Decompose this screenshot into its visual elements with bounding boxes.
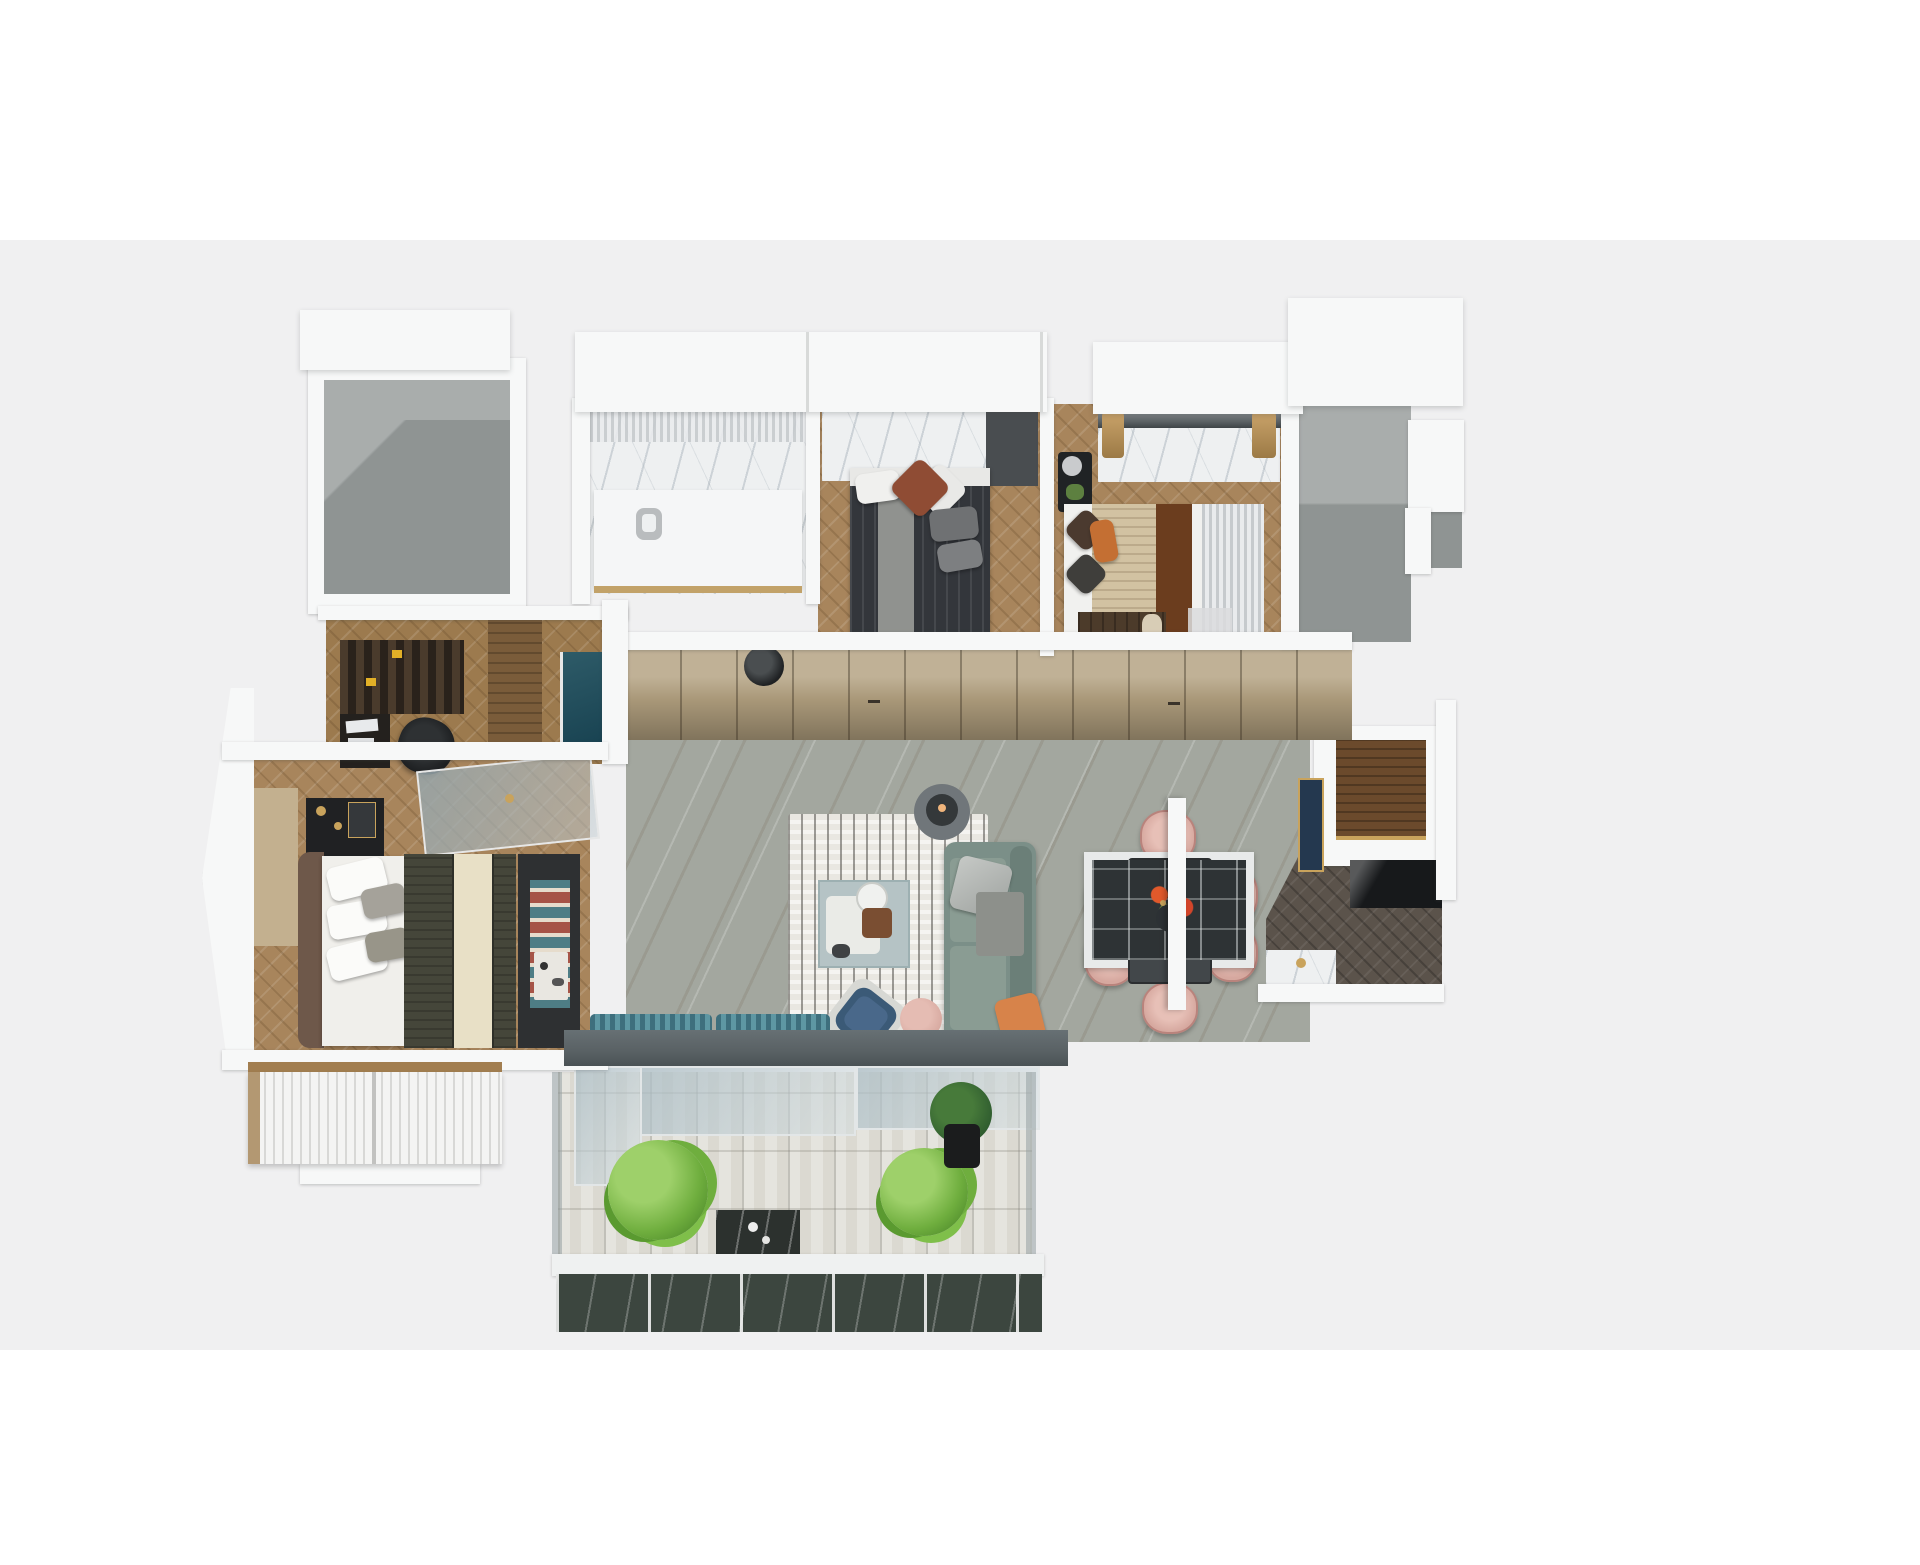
study-north-wall	[318, 606, 628, 620]
study-tall-cabinet	[488, 618, 542, 754]
bath-bed2-wall	[806, 398, 820, 604]
stairwell-step-wall	[1408, 420, 1464, 512]
gold-kettle	[1296, 958, 1306, 968]
kitchen-east-wall	[1436, 700, 1456, 900]
basket	[862, 908, 892, 938]
gold-decor	[505, 794, 514, 803]
sliding-glass-door	[640, 1066, 856, 1136]
stairwell-step-notch	[1430, 508, 1462, 568]
stool-cloth	[642, 514, 656, 532]
hallway-wardrobe-cabinets	[626, 650, 1352, 740]
hallway-north-wall	[626, 632, 1352, 650]
stairwell-step-wall	[1405, 508, 1431, 574]
utility-room-floor	[324, 420, 510, 594]
roof-slab-a	[575, 332, 1047, 412]
master-glass-desk	[416, 753, 600, 857]
lamp-flame	[938, 804, 946, 812]
wardrobe-step	[300, 1164, 480, 1184]
balcony-side-rail	[1026, 1072, 1036, 1262]
small-bowl	[832, 944, 850, 958]
roof-seam	[806, 332, 809, 412]
louver-divider	[372, 1072, 376, 1164]
navy-cabinet-gold-trim	[1298, 778, 1324, 872]
yellow-book	[392, 650, 402, 658]
gold-decor	[334, 822, 342, 830]
stairwell-floor	[1297, 402, 1411, 642]
kitchen-wood-countertop	[1336, 740, 1426, 840]
roof-slab-b	[1093, 342, 1303, 414]
balcony-header-beam	[564, 1030, 1068, 1066]
study-east-wall	[602, 600, 628, 764]
wardrobe-wood-top	[248, 1062, 502, 1072]
master-north-wall	[222, 742, 608, 760]
marble-parapet	[556, 1274, 1042, 1332]
tray-item	[552, 978, 564, 986]
bed2-bed3-wall	[1040, 398, 1054, 656]
breakfast-tray	[534, 952, 568, 1000]
roof-slab-c	[1288, 298, 1463, 406]
teal-glass-door	[560, 652, 605, 750]
tray-item	[540, 962, 548, 970]
bench-cup	[762, 1236, 770, 1244]
white-column	[1168, 798, 1186, 1010]
console-frame	[348, 802, 376, 838]
roof-seam	[1040, 332, 1043, 412]
parapet-white-curb	[552, 1254, 1044, 1276]
wardrobe-side-panel	[248, 1072, 260, 1164]
vanity-counter	[594, 490, 802, 588]
floor-plan-render	[0, 0, 1920, 1565]
gold-decor	[316, 806, 326, 816]
roof-slab-utility	[300, 310, 510, 370]
candle	[1062, 456, 1082, 476]
balcony-side-rail	[552, 1072, 562, 1272]
bed2-gray-throw	[878, 486, 914, 652]
wheat-tassel	[1102, 412, 1124, 458]
wheat-tassel	[1252, 412, 1276, 458]
stairwell-west-wall	[1281, 396, 1299, 648]
cabinet-handle	[868, 700, 880, 703]
kitchen-south-wall	[1258, 984, 1444, 1002]
pendant-lamp	[744, 646, 784, 686]
plant-pot	[1066, 484, 1084, 500]
study-bookshelf	[340, 640, 464, 714]
cabinet-handle	[1168, 702, 1180, 705]
master-headboard-panel	[250, 788, 298, 946]
dark-wardrobe-panel	[986, 400, 1038, 486]
bathroom-west-wall	[572, 398, 590, 604]
fluffy-plant	[608, 1140, 708, 1240]
black-base-cabinets	[1350, 860, 1442, 908]
shower-curtain	[590, 410, 806, 442]
plant-pot-dark	[944, 1124, 980, 1168]
gold-threshold	[594, 586, 802, 593]
master-bed-headboard	[298, 852, 324, 1048]
sofa-gray-throw	[976, 892, 1024, 956]
utility-room-wall-face	[324, 380, 510, 420]
master-cream-runner	[452, 854, 494, 1048]
balcony-gold-handle	[1160, 900, 1166, 906]
bed2-gray-pillow	[928, 506, 979, 543]
yellow-book	[366, 678, 376, 686]
bench-cup	[748, 1222, 758, 1232]
countertop-gold-edge	[1336, 836, 1426, 840]
